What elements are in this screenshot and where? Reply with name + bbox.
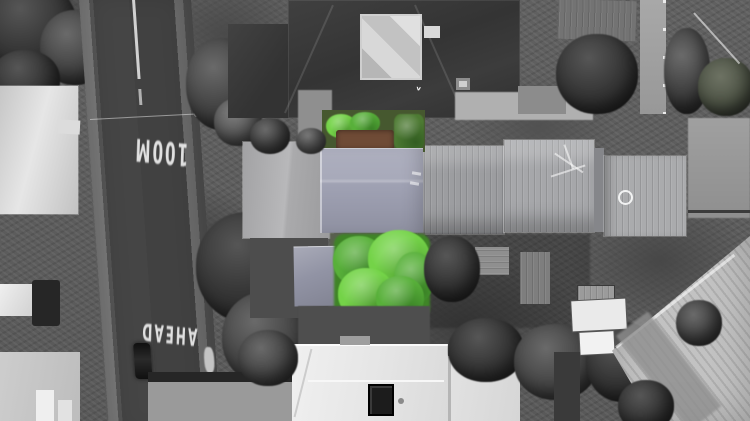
neighbour-roof-east-hip	[594, 148, 604, 232]
shed-small-white	[58, 119, 81, 134]
neighbour-roof-east-a	[418, 146, 504, 234]
roof-vent-circle	[618, 190, 633, 205]
subject-garden	[322, 110, 425, 152]
tree	[238, 330, 298, 386]
antenna-mark	[564, 144, 574, 169]
tree	[448, 318, 524, 382]
dark-structure-left	[32, 280, 60, 326]
roof-vent	[412, 171, 421, 176]
tree	[676, 300, 722, 346]
house-roof-left-mid-white	[0, 284, 36, 316]
aerial-photo: 100M AHEAD HUMP ᵥ	[0, 0, 750, 421]
roof-strip-white-2	[58, 400, 72, 421]
road-marking-100m: 100M	[133, 130, 189, 173]
dark-yard-strip	[554, 352, 580, 421]
shed-white-pair-b	[579, 331, 614, 355]
chimney	[456, 78, 470, 90]
subject-house-roof	[320, 148, 423, 233]
shed-grey-b	[520, 252, 550, 304]
roof-vent	[410, 181, 419, 186]
fence-line-dark	[688, 210, 750, 213]
pedestrian-object	[203, 347, 215, 373]
roof-white-large	[292, 344, 448, 421]
chimney	[424, 26, 440, 38]
neighbour-roof-far-east	[604, 156, 686, 236]
bird-in-flight: ᵥ	[415, 82, 430, 93]
house-roof-left-top	[0, 86, 78, 214]
road-centerline	[132, 0, 140, 79]
road-centerline-dash	[138, 89, 142, 105]
shed-grey-a	[475, 247, 509, 275]
garden-hedge	[394, 114, 424, 150]
tree	[618, 380, 674, 421]
tree	[296, 128, 326, 154]
garden-bed-brown	[336, 130, 394, 150]
tree	[556, 34, 638, 114]
neighbour-roof-east-b	[504, 140, 594, 232]
tree-faint-green	[698, 58, 750, 116]
shed-white-pair-a	[571, 299, 626, 332]
roof-vent	[398, 398, 404, 404]
roof-strip-white	[36, 390, 54, 421]
rooftop-box	[340, 336, 370, 345]
yard-concrete-right	[688, 118, 750, 218]
tree	[424, 236, 480, 302]
roof-chimney-dark	[368, 384, 394, 416]
villa-tower-roof	[362, 16, 420, 78]
roof-ridge	[308, 380, 444, 382]
driveway-strip	[640, 0, 666, 114]
tree	[250, 118, 290, 154]
